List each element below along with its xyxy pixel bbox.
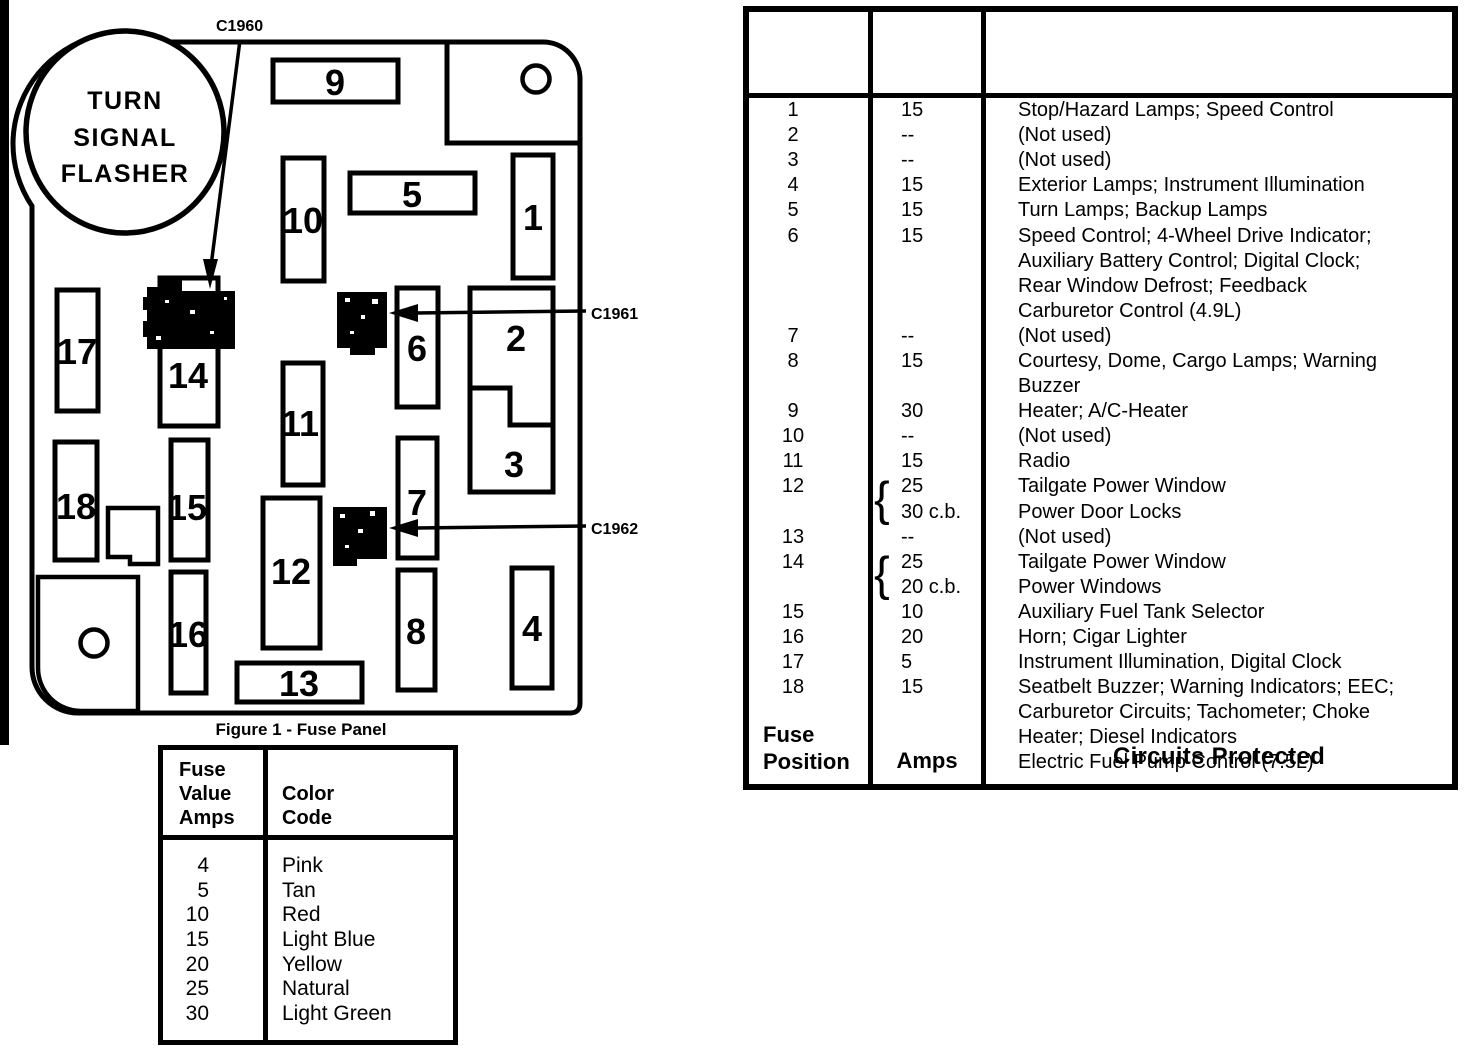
- fuse-position-cell: 5: [749, 199, 837, 222]
- table-row: 20Yellow: [163, 952, 453, 977]
- fuse-position-cell: 7: [749, 325, 837, 348]
- fuse-value-cell: 5: [163, 879, 263, 903]
- header-line: Amps: [179, 806, 235, 830]
- circuit-cell: (Not used): [986, 325, 1452, 348]
- table-row: Heater; Diesel Indicators: [749, 725, 1452, 750]
- amps-cell: --: [837, 124, 986, 147]
- amps-cell: --: [837, 526, 986, 549]
- fuse-number-3: 3: [504, 444, 524, 485]
- circuit-cell: Seatbelt Buzzer; Warning Indicators; EEC…: [986, 676, 1452, 699]
- amps-cell: 15: [837, 350, 986, 373]
- fuse-number-14: 14: [168, 355, 208, 396]
- fuse-position-cell: 4: [749, 174, 837, 197]
- circuits-protected-table: Fuse Position Amps Circuits Protected 11…: [743, 6, 1458, 790]
- amps-cell: 5: [837, 651, 986, 674]
- circuit-cell: Electric Fuel Pump Control (7.5L): [986, 751, 1452, 774]
- fuse-position-cell: 17: [749, 651, 837, 674]
- table-row: Electric Fuel Pump Control (7.5L): [749, 750, 1452, 775]
- amps-cell: 30: [837, 400, 986, 423]
- page-edge-bar: [0, 0, 9, 745]
- flasher-label-line1: TURN: [87, 87, 162, 115]
- flasher-label-line2: SIGNAL: [73, 124, 176, 152]
- table-row: 115Stop/Hazard Lamps; Speed Control: [749, 98, 1452, 123]
- table-row: Rear Window Defrost; Feedback: [749, 274, 1452, 299]
- fuse-position-cell: 11: [749, 450, 837, 473]
- mounting-hole-top: [523, 66, 550, 93]
- table-row: 10Red: [163, 903, 453, 928]
- fuse-position-cell: 2: [749, 124, 837, 147]
- circuit-cell: Horn; Cigar Lighter: [986, 626, 1452, 649]
- amps-cell: 25: [837, 551, 986, 574]
- fuse-position-cell: 8: [749, 350, 837, 373]
- table-row: 815Courtesy, Dome, Cargo Lamps; Warning: [749, 349, 1452, 374]
- amps-cell: --: [837, 325, 986, 348]
- fuse-color-code-table: Fuse Value Amps Color Code 4Pink5Tan10Re…: [158, 745, 458, 1045]
- circuit-cell: (Not used): [986, 425, 1452, 448]
- circuit-cell: Rear Window Defrost; Feedback: [986, 275, 1452, 298]
- fuse-number-16: 16: [168, 614, 208, 655]
- relay-slot-shape: [108, 508, 158, 564]
- table-row: 4Pink: [163, 854, 453, 879]
- table-row: 415Exterior Lamps; Instrument Illuminati…: [749, 173, 1452, 198]
- fuse-position-cell: 18: [749, 676, 837, 699]
- fuse-position-cell: 6: [749, 225, 837, 248]
- fuse-value-cell: 4: [163, 854, 263, 878]
- color-code-cell: Red: [263, 903, 321, 927]
- table-row: 25Natural: [163, 977, 453, 1002]
- table-row: 175Instrument Illumination, Digital Cloc…: [749, 650, 1452, 675]
- fuse-position-cell: 13: [749, 526, 837, 549]
- circuit-cell: Radio: [986, 450, 1452, 473]
- table-row: 2--(Not used): [749, 123, 1452, 148]
- table-row: 30Light Green: [163, 1002, 453, 1027]
- circuit-cell: (Not used): [986, 124, 1452, 147]
- table-row: 30 c.b.Power Door Locks: [749, 500, 1452, 525]
- circuit-cell: Tailgate Power Window: [986, 551, 1452, 574]
- table-row: 7--(Not used): [749, 324, 1452, 349]
- header-line: Fuse: [179, 758, 235, 782]
- table-row: 1425Tailgate Power Window: [749, 550, 1452, 575]
- color-code-cell: Light Green: [263, 1002, 392, 1026]
- table-row: 1225Tailgate Power Window: [749, 474, 1452, 499]
- fuse-value-cell: 10: [163, 903, 263, 927]
- circuit-cell: (Not used): [986, 149, 1452, 172]
- amps-cell: 15: [837, 676, 986, 699]
- header-line: Code: [282, 806, 334, 830]
- flasher-label-line3: FLASHER: [61, 160, 190, 188]
- amps-cell: 15: [837, 225, 986, 248]
- circuit-cell: Speed Control; 4-Wheel Drive Indicator;: [986, 225, 1452, 248]
- amps-cell: 15: [837, 174, 986, 197]
- fuse-number-13: 13: [279, 663, 319, 704]
- connector-label-c1961: C1961: [591, 306, 638, 323]
- fuse-panel-diagram: TURN SIGNAL FLASHER: [0, 0, 660, 745]
- fuse-number-1: 1: [523, 197, 543, 238]
- circuit-cell: Auxiliary Fuel Tank Selector: [986, 601, 1452, 624]
- connector-label-c1960: C1960: [216, 18, 263, 35]
- amps-cell: --: [837, 425, 986, 448]
- header-line: Color: [282, 782, 334, 806]
- fuse-number-5: 5: [402, 174, 422, 215]
- table-row: 10--(Not used): [749, 424, 1452, 449]
- column-header-color-code: Color Code: [282, 782, 334, 830]
- circuit-cell: Power Door Locks: [986, 501, 1452, 524]
- fuse-number-7: 7: [407, 482, 427, 523]
- amps-cell: 25: [837, 475, 986, 498]
- table-row: 1815Seatbelt Buzzer; Warning Indicators;…: [749, 675, 1452, 700]
- fuse-panel-manual-page: TURN SIGNAL FLASHER: [0, 0, 1472, 1056]
- fuse-number-8: 8: [406, 611, 426, 652]
- fuse-number-11: 11: [281, 403, 319, 444]
- table-row: 1115Radio: [749, 449, 1452, 474]
- amps-cell: 15: [837, 99, 986, 122]
- color-code-cell: Yellow: [263, 953, 342, 977]
- circuit-cell: Instrument Illumination, Digital Clock: [986, 651, 1452, 674]
- connector-label-c1962: C1962: [591, 521, 638, 538]
- fuse-value-cell: 20: [163, 953, 263, 977]
- color-code-table-body: 4Pink5Tan10Red15Light Blue20Yellow25Natu…: [163, 840, 453, 1026]
- fuse-number-10: 10: [283, 200, 323, 241]
- fuse-number-6: 6: [407, 328, 427, 369]
- mounting-hole-bottom: [81, 630, 108, 657]
- amps-pair-brace: {: [874, 473, 890, 525]
- amps-pair-brace: {: [874, 548, 890, 600]
- fuse-position-cell: 3: [749, 149, 837, 172]
- fuse-position-cell: 12: [749, 475, 837, 498]
- figure-caption: Figure 1 - Fuse Panel: [200, 720, 402, 740]
- color-code-cell: Light Blue: [263, 928, 375, 952]
- circuit-cell: Power Windows: [986, 576, 1452, 599]
- table-row: Carburetor Control (4.9L): [749, 299, 1452, 324]
- fuse-number-17: 17: [57, 331, 97, 372]
- circuits-table-body: 115Stop/Hazard Lamps; Speed Control2--(N…: [749, 98, 1452, 784]
- fuse-position-cell: 10: [749, 425, 837, 448]
- fuse-number-4: 4: [522, 608, 542, 649]
- circuit-cell: Exterior Lamps; Instrument Illumination: [986, 174, 1452, 197]
- amps-cell: 20 c.b.: [837, 576, 986, 599]
- circuit-cell: (Not used): [986, 526, 1452, 549]
- amps-cell: 20: [837, 626, 986, 649]
- fuse-position-cell: 9: [749, 400, 837, 423]
- amps-cell: 30 c.b.: [837, 501, 986, 524]
- table-row: 615Speed Control; 4-Wheel Drive Indicato…: [749, 223, 1452, 248]
- circuit-cell: Stop/Hazard Lamps; Speed Control: [986, 99, 1452, 122]
- fuse-number-18: 18: [56, 486, 96, 527]
- column-header-fuse-value-amps: Fuse Value Amps: [179, 758, 235, 830]
- table-row: 3--(Not used): [749, 148, 1452, 173]
- table-row: 15Light Blue: [163, 928, 453, 953]
- fuse-value-cell: 30: [163, 1002, 263, 1026]
- amps-cell: 10: [837, 601, 986, 624]
- fuse-number-15: 15: [167, 487, 207, 528]
- amps-cell: 15: [837, 199, 986, 222]
- fuse-position-cell: 15: [749, 601, 837, 624]
- circuit-cell: Turn Lamps; Backup Lamps: [986, 199, 1452, 222]
- table-row: 1620Horn; Cigar Lighter: [749, 625, 1452, 650]
- fuse-position-cell: 14: [749, 551, 837, 574]
- amps-cell: 15: [837, 450, 986, 473]
- fuse-position-cell: 1: [749, 99, 837, 122]
- circuit-cell: Carburetor Control (4.9L): [986, 300, 1452, 323]
- table-row: Buzzer: [749, 374, 1452, 399]
- table-row: Carburetor Circuits; Tachometer; Choke: [749, 700, 1452, 725]
- circuit-cell: Carburetor Circuits; Tachometer; Choke: [986, 701, 1452, 724]
- connector-c1962-shape: [333, 507, 387, 566]
- fuse-position-cell: 16: [749, 626, 837, 649]
- circuit-cell: Heater; Diesel Indicators: [986, 726, 1452, 749]
- color-code-cell: Pink: [263, 854, 323, 878]
- circuit-cell: Heater; A/C-Heater: [986, 400, 1452, 423]
- table-row: 1510Auxiliary Fuel Tank Selector: [749, 600, 1452, 625]
- table-row: 930Heater; A/C-Heater: [749, 399, 1452, 424]
- table-row: 13--(Not used): [749, 525, 1452, 550]
- amps-cell: --: [837, 149, 986, 172]
- fuse-number-2: 2: [506, 318, 526, 359]
- table-row: 5Tan: [163, 879, 453, 904]
- fuse-value-cell: 15: [163, 928, 263, 952]
- color-code-cell: Tan: [263, 879, 316, 903]
- color-code-cell: Natural: [263, 977, 350, 1001]
- header-line: Value: [179, 782, 235, 806]
- table-row: Auxiliary Battery Control; Digital Clock…: [749, 249, 1452, 274]
- circuit-cell: Courtesy, Dome, Cargo Lamps; Warning: [986, 350, 1452, 373]
- connector-c1961-shape: [337, 292, 387, 355]
- table-row: 20 c.b.Power Windows: [749, 575, 1452, 600]
- fuse-value-cell: 25: [163, 977, 263, 1001]
- table-row: 515Turn Lamps; Backup Lamps: [749, 198, 1452, 223]
- fuse-number-12: 12: [271, 551, 311, 592]
- circuit-cell: Auxiliary Battery Control; Digital Clock…: [986, 250, 1452, 273]
- fuse-number-9: 9: [325, 62, 345, 103]
- turn-signal-flasher: TURN SIGNAL FLASHER: [26, 31, 224, 233]
- circuit-cell: Buzzer: [986, 375, 1452, 398]
- circuit-cell: Tailgate Power Window: [986, 475, 1452, 498]
